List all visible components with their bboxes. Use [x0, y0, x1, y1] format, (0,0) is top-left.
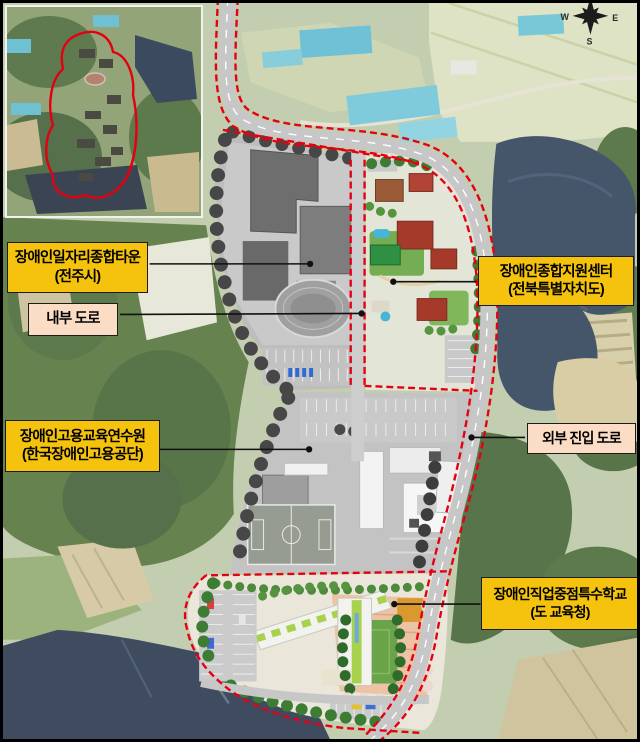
- label-internal-road-text: 내부 도로: [30, 310, 116, 328]
- label-job-town-title: 장애인일자리종합타운: [9, 249, 146, 267]
- compass-south-label: S: [586, 37, 592, 47]
- label-training-center-org: (한국장애인고용공단): [7, 446, 158, 464]
- label-external-road: 외부 진입 도로: [527, 423, 636, 454]
- compass-west-label: W: [560, 12, 569, 22]
- label-support-center-title: 장애인종합지원센터: [480, 263, 632, 281]
- soccer-field: [248, 505, 335, 565]
- location-inset-map: [5, 5, 203, 218]
- school-parking: [199, 590, 256, 681]
- label-training-center: 장애인고용교육연수원 (한국장애인고용공단): [5, 420, 160, 472]
- label-job-town-org: (전주시): [9, 268, 146, 286]
- label-job-town: 장애인일자리종합타운 (전주시): [7, 242, 148, 293]
- label-special-school-org: (도 교육청): [483, 604, 637, 622]
- label-support-center-org: (전북특별자치도): [480, 281, 632, 299]
- label-special-school: 장애인직업중점특수학교 (도 교육청): [481, 577, 639, 630]
- label-external-road-text: 외부 진입 도로: [529, 430, 634, 448]
- label-internal-road: 내부 도로: [28, 303, 118, 336]
- label-support-center: 장애인종합지원센터 (전북특별자치도): [478, 256, 634, 306]
- label-training-center-title: 장애인고용교육연수원: [7, 428, 158, 446]
- compass-east-label: E: [612, 13, 618, 23]
- site-plan-figure: W E S 장애인일자리종합타운 (전주시) 내부 도로 장애인고용교육연: [0, 0, 640, 742]
- label-special-school-title: 장애인직업중점특수학교: [483, 586, 637, 604]
